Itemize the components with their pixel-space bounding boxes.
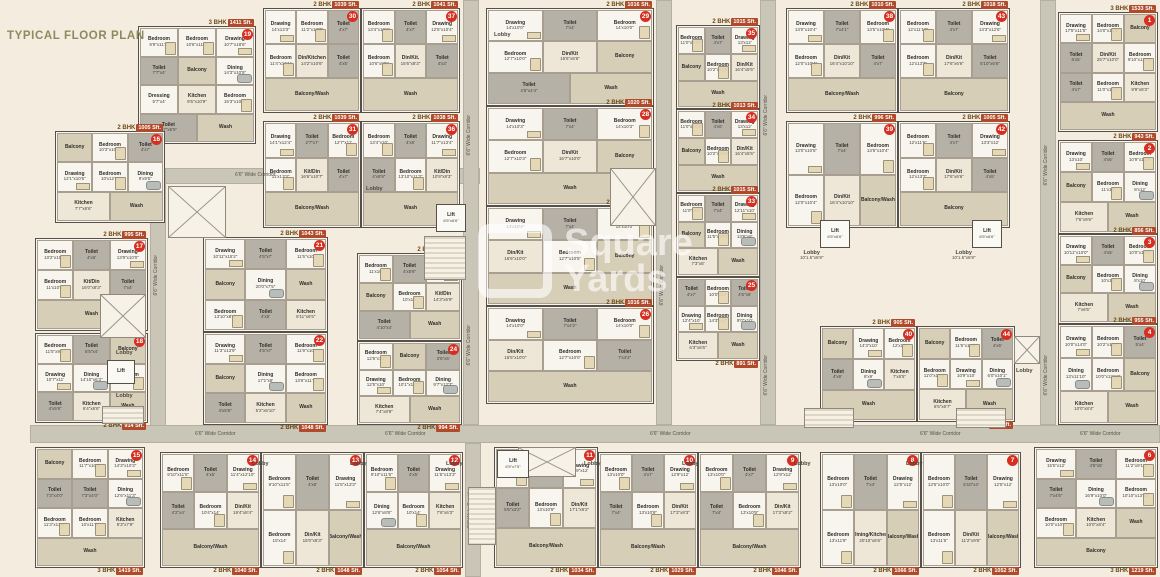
room-dimension: 12'5"x12' (994, 483, 1012, 488)
room-cell: Drawing17'5"x11'5" (1060, 14, 1092, 43)
unit-block: Bedroom11'0"x10'Toilet7'x4'Drawing12'11"… (676, 193, 760, 277)
unit-area-chip: 943 Sft. (1132, 133, 1156, 141)
unit-number-badge: 26 (640, 309, 651, 320)
lobby-label: Lobby (366, 186, 383, 192)
room-dimension: 10'0"x12'10" (1096, 375, 1121, 380)
room-cell: Balcony (178, 57, 216, 86)
room-dimension: 13'x10'9" (740, 511, 758, 516)
unit-rooms: Bedroom13'x10'0"Toilet4'x7'Drawing12'9"x… (600, 454, 696, 566)
unit-rooms: Bedroom9'10"x11'5"Toilet4'x5'Drawing11'5… (263, 454, 362, 566)
unit-type-label: 2 BHK (962, 2, 980, 8)
room-dimension: 14'3"x10' (709, 319, 727, 324)
unit-number-badge: 6 (1144, 450, 1155, 461)
room-dimension: 4'x6'9" (372, 175, 385, 180)
room-cell: Bedroom10'6"x11'5" (178, 28, 216, 57)
unit-type-label: 2 BHK (962, 115, 980, 121)
room-name: Wash (563, 286, 576, 292)
room-name: Wash (219, 125, 232, 131)
room-dimension: 12'0"x10'4" (795, 201, 817, 206)
room-cell: Toilet2'7"x7' (296, 123, 327, 158)
room-dimension: 4'x7' (874, 62, 883, 67)
staircase (804, 408, 854, 428)
room-name: Wash (1101, 113, 1114, 119)
room-dimension: 13'3"x12' (981, 141, 999, 146)
unit-area-chip: 995 Sft. (122, 231, 146, 239)
room-cell: Toilet4'x7' (328, 158, 359, 193)
unit-badge: 2 BHK1048 Sft. (316, 567, 362, 575)
unit-rooms: Bedroom11'0"x10'Toilet7'x4'Drawing12'11"… (678, 195, 758, 275)
room-cell: Toilet4'x7' (678, 279, 705, 306)
unit-number-badge: 38 (884, 11, 895, 22)
unit-block: Drawing15'5"x12'Toilet4'5"x5'Bedroom11'2… (1034, 447, 1158, 568)
room-cell: Bedroom10'0"x10' (705, 279, 732, 306)
room-name: Balcony (828, 341, 847, 347)
room-name: Balcony (682, 65, 701, 71)
room-dimension: 5'7"x4' (152, 100, 165, 105)
room-dimension: 4'5"x7' (259, 349, 272, 354)
room-name: Wash (862, 402, 875, 408)
room-cell: Bedroom13'x10'0" (822, 454, 854, 510)
unit-type-label: 2 BHK (412, 115, 430, 121)
unit-badge: 2 BHK891 Sft. (715, 360, 758, 368)
room-dimension: 4'x6' (714, 125, 723, 130)
lift-label: Lift (117, 369, 125, 375)
lobby-label: Lobby (116, 350, 133, 356)
room-dimension: 10'6"x11'5" (186, 43, 208, 48)
lift-dimension: 6'5"x6'6" (979, 235, 994, 239)
unit-badge: 2 BHK1015 Sft. (712, 186, 758, 194)
unit-rooms: BalconyBedroom11'7"x10'3"Drawing14'3"x10… (37, 449, 143, 566)
room-name: Wash (404, 206, 417, 212)
room-cell: Dining20'0"x7'5" (245, 269, 285, 299)
room-dimension: 14'x10'0" (506, 26, 524, 31)
unit-badge: 2 BHK1039 Sft. (313, 114, 359, 122)
room-cell: Bedroom9'10"x11'5" (366, 454, 398, 492)
room-cell: Bedroom11'5"x10'0" (950, 328, 981, 359)
page-title: TYPICAL FLOOR PLAN (7, 30, 145, 42)
room-cell: Kit/Din16'6"x10'7" (296, 158, 327, 193)
room-cell: Dining/Kitchen20'10"x6'6" (854, 510, 886, 566)
room-cell: Dining9'0"x10' (731, 306, 758, 333)
room-dimension: 13'x11'9" (829, 539, 847, 544)
room-cell: Toilet4'x5' (194, 454, 226, 492)
room-dimension: 4'x6' (87, 256, 96, 261)
unit-area-chip: 856 Sft. (1132, 227, 1156, 235)
room-cell: Drawing13'0"x10'4" (788, 10, 824, 44)
lobby-dimension: 10'1.5"x6'9" (800, 256, 823, 261)
room-cell: Wash (363, 78, 458, 111)
room-dimension: 14'x10'3" (616, 125, 634, 130)
room-cell: Dining8'x9' (853, 359, 884, 390)
unit-number-badge: 25 (746, 280, 757, 291)
room-dimension: 9'9"x11'3" (149, 43, 168, 48)
room-cell: Toilet4'10"x4' (359, 311, 410, 339)
room-cell: Bedroom10'x14' (263, 510, 296, 566)
room-cell: Toilet4'5"x4'4" (488, 73, 570, 104)
room-cell: Balcony (597, 240, 652, 272)
room-name: Balcony (45, 461, 64, 467)
room-dimension: 4'x5' (986, 175, 995, 180)
room-cell: Toilet4'x7' (1060, 73, 1092, 102)
room-cell: Balcony/Wash (600, 529, 696, 566)
room-dimension: 12'6"x11'3" (114, 494, 136, 499)
unit-area-chip: 1048 Sft. (335, 567, 362, 575)
unit-number-badge: 16 (151, 134, 162, 145)
unit-number-badge: 22 (314, 335, 325, 346)
unit-block: Drawing17'5"x11'5"Bedroom14'0"x10'3"Balc… (1058, 12, 1158, 132)
room-dimension: 7'3"x8' (691, 262, 704, 267)
room-dimension: 4'x5' (406, 141, 415, 146)
room-dimension: 16'5"x10'0" (504, 356, 526, 361)
room-name: Balcony (65, 145, 84, 151)
room-cell: Balcony (37, 449, 72, 479)
room-cell: Dining6'0"x10'1" (982, 359, 1013, 390)
room-dimension: 4'x5' (339, 62, 348, 67)
room-dimension: 13'4"x10' (370, 141, 388, 146)
room-cell: Bedroom10'x12'3" (92, 162, 127, 191)
unit-area-chip: 1020 Sft. (625, 99, 652, 107)
room-cell: Toilet4'x5' (245, 300, 285, 330)
room-dimension: 25'7"x10'0" (1097, 58, 1119, 63)
room-cell: Toilet7'x4' (543, 108, 598, 140)
room-name: Balcony/Wash (861, 198, 895, 204)
room-cell: Bedroom14'0"x10'3" (1092, 14, 1124, 43)
lobby-label: Lobby (1016, 368, 1033, 374)
room-cell: Wash (488, 371, 652, 402)
room-cell: Drawing10'9"x10' (950, 359, 981, 390)
unit-rooms: Bedroom11'0"x10'5"Toilet4'x7'Drawing13'x… (678, 27, 758, 107)
unit-area-chip: 1040 Sft. (232, 567, 259, 575)
room-cell: Dining16'9"x10'0" (1076, 479, 1116, 509)
unit-badge: 2 BHK1010 Sft. (850, 1, 896, 9)
lift-box: Lift (107, 360, 135, 384)
room-cell: Balcony/Wash (265, 78, 359, 111)
room-cell: Bedroom11'0"x10'5" (678, 27, 705, 54)
room-name: Balcony (682, 232, 701, 238)
room-dimension: 17'6"x6'6" (944, 175, 964, 180)
room-cell: Toilet4'5"x5' (1076, 449, 1116, 479)
room-dimension: 4'x5'6" (403, 270, 416, 275)
room-dimension: 10'11"x10'0" (1064, 251, 1088, 256)
room-dimension: 11'x10'0" (46, 286, 64, 291)
room-cell: Bedroom10'2"x10'0" (1092, 326, 1124, 358)
room-dimension: 12'x13'3" (909, 175, 927, 180)
room-cell: Kitchen7'4"x8'9" (359, 396, 410, 423)
room-dimension: 10'9"x10' (957, 374, 975, 379)
room-cell: Bedroom11'x10' (1092, 172, 1124, 202)
room-cell: Bedroom11'7"x10'3" (72, 449, 107, 479)
room-dimension: 9'7"x12'3" (433, 383, 453, 388)
room-dimension: 14'x10'0" (616, 26, 634, 31)
room-cell: Bedroom9'10"x11'5" (162, 454, 194, 492)
unit-block: Drawing10'11"x10'0"Toilet4'x5'Bedroom10'… (1058, 234, 1158, 324)
room-dimension: 7'4"x8'9" (376, 410, 393, 415)
unit-type-label: 2 BHK (280, 425, 298, 431)
staircase (956, 408, 1006, 428)
room-cell: Din/Kit16'6"x10'0" (488, 240, 543, 272)
room-cell: Wash (1060, 102, 1156, 130)
room-cell: Wash (718, 248, 758, 275)
room-name: Wash (85, 312, 98, 318)
room-dimension: 7'x4'2" (563, 324, 576, 329)
unit-badge: 3 BHK1419 Sft. (97, 567, 143, 575)
room-cell: Din/Kit25'7"x10'0" (1092, 43, 1124, 72)
room-name: Balcony (366, 294, 385, 300)
room-dimension: 11'5"x13'5" (707, 235, 729, 240)
unit-block: Bedroom13'4"x10'1"Toilet4'x7'Drawing12'5… (361, 8, 460, 113)
room-name: Balcony/Wash (194, 545, 228, 551)
cross-lines-icon (1015, 337, 1039, 363)
room-cell: Bedroom12'5"x10' (359, 343, 393, 370)
unit-area-chip: 905 Sft. (891, 319, 915, 327)
room-dimension: 17'5"x11'5" (1065, 29, 1087, 34)
room-cell: Toilet7'3"x4'0" (37, 479, 72, 509)
unit-type-label: 2 BHK (606, 100, 624, 106)
room-cell: Balcony (205, 364, 245, 394)
room-dimension: 20'10"x6'6" (859, 539, 881, 544)
room-cell: Bedroom12'7"x10'0" (488, 41, 543, 72)
room-name: Balcony (187, 68, 206, 74)
room-dimension: 12'x11'6" (909, 141, 927, 146)
unit-badge: 2 BHK1018 Sft. (962, 1, 1008, 9)
room-cell: Wash (718, 332, 758, 359)
room-dimension: 11'9"x10' (297, 349, 315, 354)
room-dimension: 7'x4' (566, 26, 575, 31)
room-dimension: 7'x6'5" (893, 375, 906, 380)
unit-type-label: 2 BHK (1113, 134, 1131, 140)
unit-type-label: 2 BHK (712, 187, 730, 193)
unit-block: Bedroom11'0"x10'5"Toilet4'x7'Drawing13'x… (676, 25, 760, 109)
room-cell: Bedroom12'x11'6" (900, 123, 936, 158)
lobby-label: Lobby (584, 461, 601, 467)
unit-block: Bedroom12'x11'10"Toilet4'x7'Drawing13'3"… (898, 8, 1010, 113)
room-dimension: 7'6"x9'6" (1075, 218, 1092, 223)
room-cell: Toilet7'x4' (700, 492, 733, 530)
room-dimension: 4'x5' (993, 344, 1002, 349)
room-dimension: 10'1"x12'7" (398, 383, 420, 388)
room-cell: Bedroom12'0"x10'4" (788, 44, 824, 78)
room-cell: Wash (410, 311, 461, 339)
unit-badge: 2 BHK1034 Sft. (550, 567, 596, 575)
room-dimension: 10'10"x13'10" (1122, 494, 1149, 499)
unit-type-label: 2 BHK (313, 2, 331, 8)
room-dimension: 4'10"x4' (376, 326, 392, 331)
room-dimension: 5'10"x6'6" (980, 62, 1000, 67)
room-cell: Bedroom11'5"x9'5" (37, 335, 73, 364)
room-dimension: 12'x11'10" (908, 28, 928, 33)
room-cell: Toilet7'x4'2" (543, 308, 598, 340)
room-dimension: 14'x10'3" (506, 125, 524, 130)
room-cell: Kitchen7'7"x6'6" (57, 192, 110, 221)
room-name: Wash (428, 322, 441, 328)
unit-badge: 2 BHK1005 Sft. (962, 114, 1008, 122)
room-cell: Drawing11'3"x13'9" (205, 334, 245, 364)
room-cell: Bedroom12'x13'3" (900, 44, 936, 78)
room-name: Balcony/Wash (295, 206, 329, 212)
unit-type-label: 3 BHK (209, 20, 227, 26)
room-dimension: 11'2"x9'6" (961, 539, 980, 544)
room-cell: Dining14'3"x10'9" (216, 57, 254, 86)
room-dimension: 4'x7' (745, 473, 754, 478)
room-dimension: 6'5"x6'7" (934, 405, 951, 410)
room-dimension: 7'7"x6'6" (75, 207, 92, 212)
room-cell: Toilet4'5"x7' (245, 239, 285, 269)
room-cell: Toilet4'x5' (398, 454, 430, 492)
room-cell: Drawing10'11"x15'2" (205, 239, 245, 269)
room-dimension: 10'x14' (407, 511, 421, 516)
unit-area-chip: 1046 Sft. (772, 567, 799, 575)
room-name: Wash (83, 549, 96, 555)
unit-type-label: 2 BHK (1113, 228, 1131, 234)
room-dimension: 17'3"x8'3" (670, 511, 690, 516)
lift-box: Lift6'5"x6'6" (436, 204, 466, 232)
room-cell: Balcony (1060, 265, 1092, 294)
room-name: Balcony (215, 282, 234, 288)
unit-badge: 2 BHK1048 Sft. (280, 424, 326, 432)
unit-type-label: 2 BHK (873, 568, 891, 574)
room-cell: Drawing12'1"x10'5" (57, 162, 92, 191)
room-name: Balcony (615, 154, 634, 160)
unit-block: Drawing11'3"x13'9"Toilet4'5"x7'Bedroom11… (203, 332, 328, 425)
unit-block: Drawing14'1"x12'4"Toilet2'7"x7'Bedroom12… (263, 121, 361, 228)
room-dimension: 7'x4'2" (618, 356, 631, 361)
room-dimension: 10'7"x11' (46, 378, 64, 383)
lobby-label: Lobby (116, 393, 133, 399)
room-name: Wash (563, 384, 576, 390)
unit-block: Drawing13'0"x10'5"Toilet7'x4'Bedroom13'5… (786, 121, 898, 228)
unit-type-label: 2 BHK (213, 568, 231, 574)
room-cell: Dressing5'7"x4' (140, 85, 178, 114)
room-cell: Kit/Din10'9"x8'3" (426, 158, 458, 193)
room-dimension: 12'1"x10'5" (64, 177, 86, 182)
room-dimension: 16'0"x8'3" (82, 286, 102, 291)
corridor-label: 6'6" Wide Corridor (466, 325, 472, 366)
unit-type-label: 2 BHK (117, 125, 135, 131)
unit-badge: 2 BHK995 Sft. (103, 231, 146, 239)
unit-block: Drawing14'x13'3"Bedroom11'2"x13'3"Toilet… (263, 8, 361, 113)
room-cell: Balcony (678, 54, 705, 81)
unit-area-chip: 1411 Sft. (228, 19, 254, 27)
room-dimension: 10'0"x8'4" (1074, 407, 1094, 412)
room-dimension: 10'11"x15'2" (213, 255, 237, 260)
unit-number-badge: 17 (134, 241, 145, 252)
unit-block: Bedroom13'x10'0"Toilet4'x7'Drawing12'9"x… (698, 452, 801, 568)
room-dimension: 4'x7' (339, 28, 348, 33)
room-dimension: 4'x7' (950, 28, 959, 33)
room-dimension: 4'x5'6" (49, 407, 62, 412)
room-cell: Balcony/Wash (366, 529, 461, 566)
room-cell: Bedroom9'9"x11'3" (140, 28, 178, 57)
room-cell: Bedroom12'7"x10'5" (543, 240, 598, 272)
unit-rooms: Drawing10'11"x15'2"Toilet4'5"x7'Bedroom1… (205, 239, 326, 330)
unit-number-badge: 4 (1144, 327, 1155, 338)
room-dimension: 6'3"x6'6" (689, 346, 706, 351)
unit-badge: 2 BHK1038 Sft. (412, 114, 458, 122)
room-dimension: 17'6"x6'6" (944, 62, 964, 67)
unit-badge: 2 BHK1043 Sft. (280, 230, 326, 238)
room-cell: Toilet4'x6' (73, 240, 109, 270)
corridor-label: 6'6" Wide Corridor (466, 115, 472, 156)
room-dimension: 13'x11'5" (930, 539, 948, 544)
unit-block: Bedroom12'5"x10'BalconyToilet3'6"x5'Draw… (357, 341, 462, 425)
unit-area-chip: 1016 Sft. (625, 299, 652, 307)
room-dimension: 4'x7' (950, 141, 959, 146)
unit-type-label: 2 BHK (853, 115, 871, 121)
room-dimension: 4'x7' (406, 28, 415, 33)
room-dimension: 9'5"x10'9" (187, 100, 207, 105)
room-dimension: 15'5"x12' (1047, 464, 1065, 469)
unit-type-label: 2 BHK (550, 568, 568, 574)
unit-number-badge: 19 (242, 29, 253, 40)
room-dimension: 8'11"x6'5" (296, 315, 315, 320)
room-cell: Bedroom10'0"x10'5" (1036, 508, 1076, 538)
lift-dimension: 6'5"x6'6" (827, 235, 842, 239)
room-dimension: 12'9"x12' (671, 473, 689, 478)
room-cell: Bedroom12'7"x10'3" (488, 140, 543, 172)
room-cell: Din/Kit.15'6"x8'3" (395, 44, 427, 78)
room-cell: Drawing14'1"x12'4" (265, 123, 296, 158)
room-dimension: 12'4"x10' (682, 319, 700, 324)
unit-block: Bedroom12'x11'6"Toilet4'x7'Drawing13'3"x… (898, 121, 1010, 228)
room-cell: Balcony/Wash (788, 78, 896, 111)
unit-rooms: Bedroom13'x10'0"Toilet7'x4'Drawing12'5"x… (822, 454, 919, 566)
room-name: Balcony (400, 354, 419, 360)
room-dimension: 13'x10'0" (829, 483, 847, 488)
room-cell: Bedroom12'x11'10" (900, 10, 936, 44)
room-cell: Drawing12'5"x10' (359, 370, 393, 397)
room-cell: Drawing14'x10'0" (488, 308, 543, 340)
room-name: Balcony/Wash (733, 545, 767, 551)
corridor-label: 6'6" Wide Corridor (659, 265, 665, 306)
unit-badge: 2 BHK943 Sft. (1113, 133, 1156, 141)
room-cell: Balcony/Wash (700, 529, 799, 566)
unit-type-label: 2 BHK (650, 568, 668, 574)
room-cell: Toilet7'x4' (705, 195, 732, 222)
unit-number-badge: 35 (746, 28, 757, 39)
room-cell: Bedroom13'5"x10'0" (923, 454, 955, 510)
unit-badge: 2 BHK1016 Sft. (606, 299, 652, 307)
room-cell: Bedroom10'10"x13'10" (1116, 479, 1156, 509)
unit-number-badge: 40 (903, 329, 914, 340)
unit-area-chip: 1038 Sft. (431, 114, 458, 122)
room-cell: Din/Kit16'4"x10'10" (824, 175, 860, 227)
room-dimension: 13'9"x10'0" (117, 256, 139, 261)
room-dimension: 12'7"x10'0" (504, 57, 526, 62)
room-dimension: 13'5"x10'4" (867, 28, 889, 33)
room-cell: Bedroom13'x11'9" (822, 510, 854, 566)
room-dimension: 7'3"x4'0" (46, 494, 63, 499)
room-cell: Bedroom11'5"x13'5" (705, 222, 732, 249)
room-dimension: 7'x4' (712, 511, 721, 516)
room-name: Wash (711, 175, 724, 181)
unit-number-badge: 24 (448, 344, 459, 355)
room-cell: Kitchen7'3"x8' (678, 248, 718, 275)
unit-rooms: Drawing11'3"x13'9"Toilet4'5"x7'Bedroom11… (205, 334, 326, 423)
unit-area-chip: 1016 Sft. (625, 1, 652, 9)
unit-type-label: 2 BHK (973, 568, 991, 574)
room-cell: Drawing10'7"x11' (37, 364, 73, 393)
room-cell: Toilet4'x5' (1092, 236, 1124, 265)
lobby-label: Lobby10'1.5"x6'9" (800, 250, 823, 261)
unit-block: Drawing14'x10'0"Toilet7'x4'Bedroom14'x10… (486, 8, 654, 106)
unit-number-badge: 15 (131, 450, 142, 461)
unit-block: Bedroom9'10"x11'5"Toilet4'x5'Drawing11'4… (160, 452, 261, 568)
room-dimension: 7'3"x4'0" (81, 494, 98, 499)
unit-type-label: 3 BHK (1110, 6, 1128, 12)
corridor-label: 6'6" Wide Corridor (195, 431, 236, 437)
unit-area-chip: 1043 Sft. (299, 230, 326, 238)
room-dimension: 13'x11'10" (1066, 375, 1086, 380)
